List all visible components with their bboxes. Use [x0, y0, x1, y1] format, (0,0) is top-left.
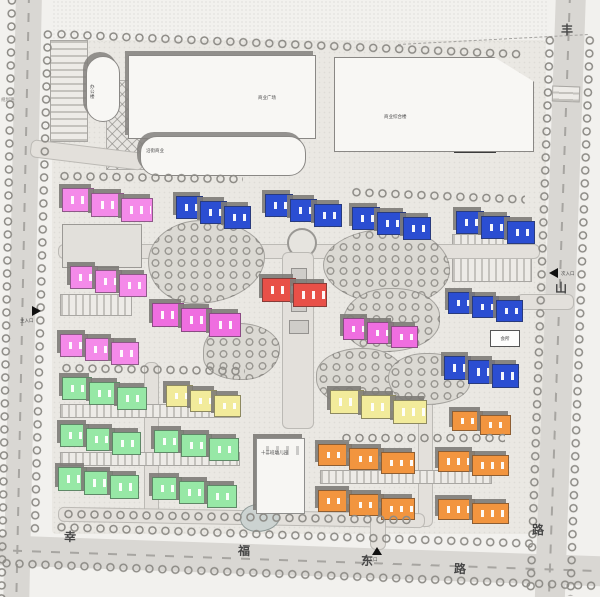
- building-windows: [183, 442, 209, 449]
- building-windows: [202, 209, 225, 216]
- building-segment: [391, 326, 418, 348]
- building-windows: [112, 483, 137, 490]
- building-magenta-P3: [152, 303, 238, 337]
- building-yellow-Y1: [166, 385, 238, 417]
- building-windows: [64, 196, 92, 203]
- building-red-R1: [262, 278, 324, 307]
- building-segment: [330, 390, 364, 414]
- building-windows: [72, 274, 96, 281]
- building-windows: [211, 446, 237, 453]
- building-segment: [381, 452, 415, 474]
- building-windows: [320, 498, 350, 505]
- building-segment: [60, 334, 88, 357]
- building-windows: [482, 422, 509, 428]
- building-windows: [470, 368, 493, 375]
- building-segment: [403, 217, 431, 240]
- building-windows: [354, 215, 378, 222]
- building-segment: [448, 292, 475, 314]
- building-windows: [405, 225, 429, 232]
- building-segment: [119, 274, 147, 297]
- building-windows: [267, 202, 291, 209]
- building-segment: [452, 411, 483, 431]
- building-segment: [472, 503, 509, 524]
- building-segment: [456, 211, 484, 234]
- building-windows: [91, 390, 117, 397]
- internal-road: [516, 294, 574, 310]
- building-windows: [212, 321, 239, 328]
- building-segment: [60, 424, 89, 447]
- building-segment: [111, 342, 139, 365]
- building-segment: [209, 438, 239, 461]
- building-windows: [458, 219, 482, 226]
- entrance-arrow-east-icon: [549, 268, 558, 278]
- building-pink-P2: [70, 266, 144, 297]
- building-blue-B3: [352, 207, 428, 240]
- building-segment: [86, 428, 115, 451]
- building-windows: [64, 385, 90, 392]
- building-segment: [472, 455, 509, 476]
- building-windows: [316, 212, 340, 219]
- plaza-label: 商业广场: [258, 95, 276, 100]
- building-magenta-P4: [343, 318, 415, 348]
- building-windows: [181, 489, 207, 496]
- building-green-G3: [154, 430, 236, 461]
- building-segment: [91, 193, 123, 217]
- building-windows: [509, 229, 533, 236]
- building-windows: [154, 311, 181, 318]
- building-windows: [123, 206, 151, 213]
- building-orange-O4: [318, 490, 412, 520]
- building-orange-O5: [438, 499, 506, 524]
- building-segment: [468, 360, 495, 384]
- building-segment: [507, 221, 535, 244]
- building-segment: [152, 477, 182, 500]
- building-green-G1: [62, 377, 144, 410]
- building-segment: [481, 216, 509, 239]
- building-segment: [492, 364, 519, 388]
- building-segment: [121, 198, 153, 222]
- axis-pavilion: [289, 320, 309, 334]
- building-segment: [393, 400, 427, 424]
- building-windows: [474, 304, 497, 311]
- building-blue-B6: [444, 356, 516, 388]
- building-segment: [95, 270, 123, 293]
- building-green-G4: [58, 467, 136, 499]
- building-windows: [383, 460, 413, 467]
- entrance-east-label: 次入口: [561, 271, 575, 276]
- building-windows: [320, 452, 350, 459]
- kindergarten-label: 十二班幼儿园: [261, 450, 288, 455]
- building-windows: [379, 220, 403, 227]
- building-windows: [393, 334, 416, 341]
- building-windows: [352, 502, 382, 509]
- building-community-facility: [62, 224, 142, 268]
- building-segment: [190, 390, 217, 412]
- building-windows: [113, 350, 137, 357]
- building-segment: [200, 201, 227, 224]
- building-mall-east: [334, 57, 534, 152]
- parking-stripes: [50, 40, 88, 142]
- building-windows: [168, 393, 191, 400]
- building-orange-O2: [318, 444, 412, 474]
- building-segment: [318, 444, 352, 466]
- building-windows: [498, 308, 521, 315]
- building-segment: [262, 278, 296, 302]
- building-windows: [474, 462, 506, 468]
- building-segment: [361, 395, 395, 419]
- building-windows: [192, 398, 215, 405]
- building-segment: [152, 303, 184, 327]
- building-segment: [117, 387, 147, 410]
- mall-label: 商业综合楼: [384, 114, 407, 119]
- building-segment: [349, 448, 383, 470]
- parking-stripes: [60, 294, 132, 316]
- south-road-char-2: 福: [238, 545, 250, 557]
- building-segment: [438, 451, 475, 472]
- building-windows: [483, 224, 507, 231]
- building-segment: [472, 296, 499, 318]
- building-segment: [349, 494, 383, 516]
- building-segment: [444, 356, 471, 380]
- entrance-arrow-south-icon: [372, 547, 382, 555]
- entrance-south-label: 次入口: [364, 557, 378, 562]
- building-windows: [383, 506, 413, 513]
- building-segment: [480, 415, 511, 435]
- building-windows: [156, 438, 182, 445]
- building-commercial-annex: [140, 136, 306, 176]
- club-label: 会所: [501, 336, 510, 341]
- building-segment: [496, 300, 523, 322]
- building-windows: [446, 364, 469, 371]
- building-segment: [89, 382, 119, 405]
- office-label: 办公楼: [90, 84, 98, 100]
- building-green-G5: [152, 477, 234, 508]
- site-plan-canvas: 商业广场 商业综合楼 沿街商业 办公楼 会所 十二班幼儿园 规划路 幸 福 东 …: [0, 0, 600, 597]
- building-windows: [216, 403, 239, 410]
- building-segment: [62, 188, 94, 212]
- building-segment: [343, 318, 370, 340]
- entrance-west-label: 主入口: [20, 318, 34, 323]
- building-segment: [70, 266, 98, 289]
- building-commercial-main: [128, 55, 316, 139]
- building-segment: [209, 313, 241, 337]
- building-windows: [364, 403, 394, 410]
- building-green-G2: [60, 424, 138, 455]
- building-segment: [293, 283, 327, 307]
- annex-label: 沿街商业: [146, 148, 164, 153]
- east-road-char-3: 路: [532, 524, 544, 536]
- building-windows: [292, 207, 316, 214]
- building-windows: [183, 316, 210, 323]
- building-segment: [367, 322, 394, 344]
- building-segment: [85, 338, 113, 361]
- building-windows: [114, 440, 139, 447]
- building-segment: [318, 490, 352, 512]
- west-road-label: 规划路: [1, 97, 15, 102]
- building-windows: [60, 475, 85, 482]
- building-windows: [178, 204, 201, 211]
- building-windows: [295, 291, 324, 298]
- building-segment: [314, 204, 342, 227]
- building-windows: [209, 493, 235, 500]
- building-pink-P5: [60, 334, 136, 365]
- building-windows: [450, 300, 473, 307]
- building-segment: [381, 498, 415, 520]
- building-windows: [345, 326, 368, 333]
- building-segment: [181, 434, 211, 457]
- east-road-char-2: 山: [555, 282, 567, 294]
- building-segment: [181, 308, 213, 332]
- building-orange-O1: [452, 411, 508, 435]
- parking-stripes: [452, 256, 532, 282]
- north-ground-texture: [52, 0, 548, 42]
- building-windows: [264, 286, 293, 293]
- building-windows: [440, 458, 472, 464]
- building-segment: [84, 471, 113, 495]
- building-blue-B4: [456, 211, 532, 244]
- building-segment: [110, 475, 139, 499]
- building-windows: [369, 330, 392, 337]
- building-windows: [332, 398, 362, 405]
- crosswalk: [552, 86, 581, 103]
- building-segment: [154, 430, 184, 453]
- east-road-char-1: 丰: [561, 24, 573, 36]
- building-windows: [97, 278, 121, 285]
- building-blue-B2: [265, 194, 339, 227]
- building-blue-B1: [176, 196, 248, 229]
- building-windows: [121, 282, 145, 289]
- building-orange-O3: [438, 451, 506, 476]
- building-windows: [154, 485, 180, 492]
- building-segment: [438, 499, 475, 520]
- building-segment: [352, 207, 380, 230]
- building-segment: [58, 467, 87, 491]
- building-windows: [119, 395, 145, 402]
- building-windows: [395, 408, 425, 415]
- building-windows: [88, 436, 113, 443]
- south-road-char-1: 幸: [64, 531, 76, 543]
- south-road-char-4: 路: [454, 563, 466, 575]
- building-windows: [62, 432, 87, 439]
- building-pink-P1: [62, 188, 150, 222]
- building-segment: [62, 377, 92, 400]
- building-segment: [290, 199, 318, 222]
- building-windows: [440, 506, 472, 512]
- building-blue-B5: [448, 292, 520, 322]
- building-windows: [62, 342, 86, 349]
- building-segment: [179, 481, 209, 504]
- building-windows: [352, 456, 382, 463]
- building-segment: [112, 432, 141, 455]
- club-label-box: 会所: [490, 330, 520, 347]
- building-windows: [474, 510, 506, 516]
- building-segment: [377, 212, 405, 235]
- building-windows: [494, 372, 517, 379]
- building-windows: [454, 418, 481, 424]
- building-windows: [87, 346, 111, 353]
- building-windows: [94, 201, 122, 208]
- building-segment: [265, 194, 293, 217]
- building-segment: [166, 385, 193, 407]
- building-segment: [224, 206, 251, 229]
- entrance-arrow-west-icon: [32, 306, 41, 316]
- building-windows: [86, 479, 111, 486]
- building-yellow-Y2: [330, 390, 424, 424]
- building-windows: [226, 214, 249, 221]
- building-segment: [207, 485, 237, 508]
- building-segment: [214, 395, 241, 417]
- building-segment: [176, 196, 203, 219]
